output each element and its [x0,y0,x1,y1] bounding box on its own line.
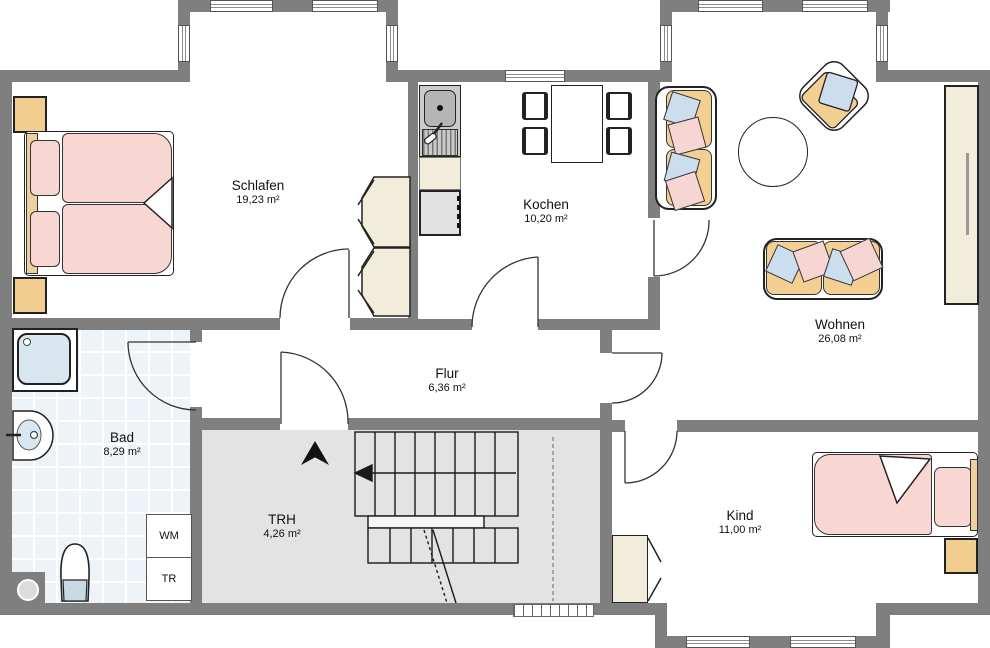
stove-knob [457,205,461,210]
wardrobe-doors [648,538,661,601]
room-label-kind: Kind 11,00 m² [719,508,762,536]
door-kochen-wohnen [654,220,709,276]
window [802,0,868,12]
room-label-flur: Flur 6,36 m² [428,366,465,394]
wall [876,603,890,648]
stove-knob [457,214,461,219]
stairwell-floor [202,430,600,603]
wall [202,418,280,430]
window [178,25,190,62]
sink-drainer [422,129,458,156]
room-area: 10,20 m² [523,213,569,225]
bed-pillow [934,467,972,527]
entry-door-threshold [513,604,594,617]
room-area: 11,00 m² [719,524,762,536]
wall [350,318,408,330]
door-trh [281,352,348,424]
wall [0,70,12,615]
chair [522,127,548,155]
wall [600,330,612,353]
window [312,0,378,12]
floor-plan: WM TR [0,0,990,648]
room-name: Kind [719,508,762,523]
stove-knob [457,223,461,228]
dryer-label: TR [162,573,177,585]
pipe-column [17,579,39,601]
nightstand [13,96,47,133]
wardrobe-schlafen [358,177,410,316]
wall [978,70,990,615]
bed-duvet [62,204,172,274]
wardrobe [612,535,648,603]
room-area: 19,23 m² [232,194,285,206]
wardrobe-handle [966,153,969,235]
bed-duvet [814,454,932,535]
door-swing-arc [472,257,538,327]
room-name: Kochen [523,197,569,212]
door-flur-wohnen [612,353,662,403]
stove [419,190,461,236]
washing-machine-label: WM [159,530,179,542]
window [210,0,273,12]
washing-machine: WM [146,514,192,558]
room-name: Wohnen [815,317,865,332]
window [660,25,672,62]
dining-table [551,85,603,163]
nightstand [13,277,47,314]
door-kochen [472,257,538,327]
wall [0,70,190,82]
bed-duvet [62,133,172,203]
room-label-wohnen: Wohnen 26,08 m² [815,317,865,345]
nightstand [944,538,978,574]
wall [648,277,660,330]
bed-headboard [970,459,978,531]
window [686,636,750,648]
room-name: Schlafen [232,178,285,193]
door-swing-arc [280,249,349,318]
shower-drain [23,338,31,346]
window [698,0,763,12]
door-swing-arc [281,352,348,424]
wall [600,403,612,605]
door-schlafen [280,249,349,318]
window [386,25,398,62]
room-label-trh: TRH 4,26 m² [263,512,300,540]
room-name: TRH [263,512,300,527]
room-area: 6,36 m² [428,382,465,394]
chair [522,92,548,120]
door-swing-arc [612,353,662,403]
wall [878,603,990,615]
window [505,70,565,82]
wall [612,420,625,432]
room-area: 8,29 m² [103,446,140,458]
window [790,636,856,648]
room-area: 26,08 m² [815,333,865,345]
dryer: TR [146,557,192,601]
door-kind [625,431,677,483]
wall [677,420,978,432]
bed-pillow [30,140,60,196]
wall [348,418,612,430]
sink-drain [437,105,443,111]
bed-pillow [30,211,60,267]
room-label-bad: Bad 8,29 m² [103,430,140,458]
room-area: 4,26 m² [263,528,300,540]
chair [606,92,632,120]
wall [876,70,990,82]
chair [606,127,632,155]
room-label-kochen: Kochen 10,20 m² [523,197,569,225]
wall [408,82,418,330]
wall [190,330,202,342]
armchair [794,56,873,135]
room-name: Bad [103,430,140,445]
wall [538,319,660,330]
stove-knob [457,196,461,201]
door-swing-arc [654,220,709,276]
room-label-schlafen: Schlafen 19,23 m² [232,178,285,206]
room-name: Flur [428,366,465,381]
round-table [738,117,808,187]
wall [408,319,472,330]
kitchen-counter [419,157,461,190]
window [876,25,888,62]
tall-wardrobe [944,85,979,305]
door-swing-arc [625,431,677,483]
